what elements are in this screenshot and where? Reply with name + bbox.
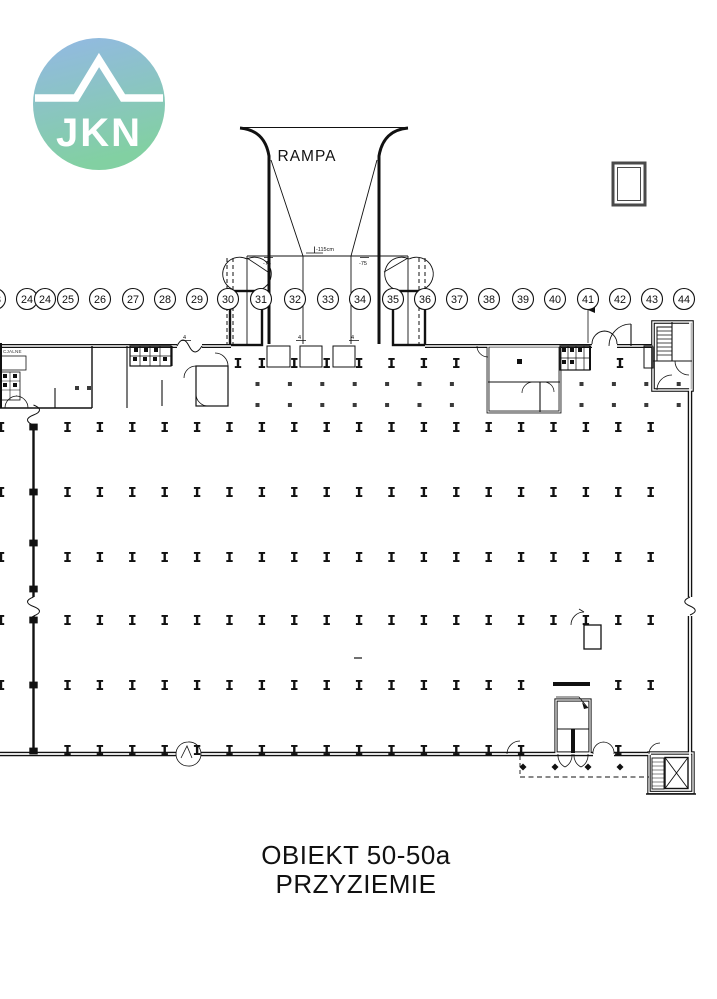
- column-marker: [388, 487, 394, 497]
- column-dot: [87, 386, 91, 390]
- column-marker: [226, 745, 232, 755]
- column-marker: [324, 615, 330, 625]
- column-marker: [226, 615, 232, 625]
- column-marker: [129, 680, 135, 690]
- column-marker: [64, 552, 70, 562]
- column-marker: [64, 487, 70, 497]
- grid-bubble-label: 42: [614, 294, 626, 306]
- top-band-rooms: [1, 306, 692, 412]
- column-marker: [129, 745, 135, 755]
- column-dot: [644, 403, 648, 407]
- wall-column: [29, 424, 37, 431]
- diamond-marker: [617, 764, 624, 771]
- column-marker: [97, 745, 103, 755]
- column-marker: [356, 487, 362, 497]
- column-marker: [388, 680, 394, 690]
- column-dot: [677, 403, 681, 407]
- column-marker: [518, 615, 524, 625]
- column-marker: [617, 358, 623, 368]
- column-marker: [453, 615, 459, 625]
- column-marker: [194, 487, 200, 497]
- grid-bubble: 36: [415, 289, 436, 310]
- column-marker: [583, 615, 589, 625]
- dock-door-right: [385, 257, 434, 289]
- column-marker: [162, 552, 168, 562]
- grid-bubble-label: 43: [646, 294, 658, 306]
- grid-bubble-label: 28: [159, 294, 171, 306]
- grid-bubble: 38: [479, 289, 500, 310]
- title-line2: PRZYZIEMIE: [275, 869, 436, 899]
- left-room-box: [1, 356, 26, 370]
- title-line1: OBIEKT 50-50a: [261, 840, 451, 870]
- grid-bubble-label: 24: [39, 294, 51, 306]
- grid-bubble: 29: [187, 289, 208, 310]
- column-dot: [418, 403, 422, 407]
- column-marker: [97, 615, 103, 625]
- column-marker: [259, 358, 265, 368]
- column-marker: [550, 422, 556, 432]
- column-dot: [385, 403, 389, 407]
- dock-pad: [300, 346, 322, 367]
- column-marker: [0, 552, 4, 562]
- wall-breaks: [177, 340, 695, 616]
- column-marker: [453, 680, 459, 690]
- column-marker: [583, 422, 589, 432]
- column-marker: [259, 745, 265, 755]
- grid-bubble-label: 39: [517, 294, 529, 306]
- column-marker: [226, 680, 232, 690]
- grid-bubble-label: 25: [62, 294, 74, 306]
- column-marker: [324, 552, 330, 562]
- column-marker: [324, 422, 330, 432]
- column-marker: [194, 745, 200, 755]
- column-marker: [324, 745, 330, 755]
- hall-closet: [584, 625, 601, 649]
- column-dot: [612, 382, 616, 386]
- column-marker: [421, 680, 427, 690]
- column-marker: [0, 422, 4, 432]
- logo-text: JKN: [56, 111, 142, 155]
- drawing-sheet: JKN RAMPA -115cm -75 -75 4 4 4: [0, 0, 717, 999]
- column-marker: [259, 615, 265, 625]
- ramp-depth-annotation: -115cm: [316, 247, 334, 253]
- column-dot: [320, 403, 324, 407]
- column-marker: [64, 680, 70, 690]
- column-marker: [486, 487, 492, 497]
- ramp-slope-right: -75: [359, 261, 367, 267]
- column-marker: [356, 422, 362, 432]
- column-marker: [194, 680, 200, 690]
- grid-bubble-label: 37: [451, 294, 463, 306]
- column-marker: [453, 358, 459, 368]
- column-marker: [486, 680, 492, 690]
- left-wall: [0, 343, 92, 754]
- column-marker: [291, 422, 297, 432]
- column-marker: [648, 680, 654, 690]
- column-marker: [291, 358, 297, 368]
- column-dot: [677, 382, 681, 386]
- grid-bubble-label: 44: [678, 294, 690, 306]
- column-marker: [194, 552, 200, 562]
- column-marker: [421, 487, 427, 497]
- grid-bubble-label: 23: [0, 294, 1, 306]
- title-block: OBIEKT 50-50a PRZYZIEMIE: [261, 840, 451, 899]
- grid-bubble: 41: [578, 289, 599, 310]
- grid-bubble: 27: [123, 289, 144, 310]
- column-dot: [385, 382, 389, 386]
- column-marker: [162, 422, 168, 432]
- walls: [0, 322, 693, 793]
- grid-bubble: 42: [610, 289, 631, 310]
- column-marker: [388, 745, 394, 755]
- grid-bubble: 23: [0, 289, 6, 310]
- grid-axis-bubbles: 2324242526272829303132333435363738394041…: [0, 289, 695, 310]
- door-arc: [609, 324, 631, 346]
- column-marker: [550, 615, 556, 625]
- column-marker: [453, 745, 459, 755]
- wall-column: [29, 489, 37, 496]
- door-arc: [593, 742, 614, 754]
- ramp-label: RAMPA: [278, 148, 337, 165]
- column-marker: [583, 487, 589, 497]
- grid-bubble-label: 32: [289, 294, 301, 306]
- column-marker: [324, 680, 330, 690]
- grid-bubble-label: 30: [222, 294, 234, 306]
- column-marker: [64, 422, 70, 432]
- column-marker: [259, 680, 265, 690]
- column-marker: [421, 615, 427, 625]
- left-room-label: CJALNE: [3, 349, 22, 354]
- column-marker: [194, 615, 200, 625]
- column-marker: [356, 615, 362, 625]
- column-marker: [615, 680, 621, 690]
- column-marker: [291, 552, 297, 562]
- grid-bubble: 31: [251, 289, 272, 310]
- column-dot: [418, 382, 422, 386]
- column-marker: [583, 552, 589, 562]
- column-marker: [97, 680, 103, 690]
- floor-plan: JKN RAMPA -115cm -75 -75 4 4 4: [0, 0, 717, 999]
- column-marker: [388, 615, 394, 625]
- wall-column: [29, 617, 37, 624]
- diamond-marker: [585, 764, 592, 771]
- column-dot: [612, 403, 616, 407]
- grid-bubble-label: 41: [582, 294, 594, 306]
- grid-bubble-label: 36: [419, 294, 431, 306]
- column-marker: [648, 487, 654, 497]
- grid-bubble: 32: [285, 289, 306, 310]
- grid-bubble: 25: [58, 289, 79, 310]
- column-marker: [129, 487, 135, 497]
- column-dot: [353, 403, 357, 407]
- column-marker: [550, 487, 556, 497]
- column-marker: [615, 745, 621, 755]
- column-dot: [353, 382, 357, 386]
- column-marker: [64, 745, 70, 755]
- column-marker: [324, 487, 330, 497]
- grid-bubble-label: 38: [483, 294, 495, 306]
- grid-bubble-label: 29: [191, 294, 203, 306]
- column-marker: [518, 552, 524, 562]
- column-marker: [129, 552, 135, 562]
- column-marker: [129, 422, 135, 432]
- roof-shaft: [613, 163, 645, 205]
- column-marker: [550, 552, 556, 562]
- column-marker: [518, 422, 524, 432]
- column-marker: [162, 680, 168, 690]
- dock-pad: [333, 346, 355, 367]
- grid-bubble-label: 34: [354, 294, 366, 306]
- column-marker: [518, 680, 524, 690]
- column-marker: [97, 552, 103, 562]
- dock-pad: [267, 346, 290, 367]
- column-marker: [259, 552, 265, 562]
- column-marker: [388, 552, 394, 562]
- column-dot: [288, 403, 292, 407]
- grid-bubble: 30: [218, 289, 239, 310]
- column-marker: [0, 680, 4, 690]
- column-marker: [291, 615, 297, 625]
- wall-column: [29, 586, 37, 593]
- column-marker: [518, 487, 524, 497]
- column-marker: [162, 615, 168, 625]
- wall-column: [29, 748, 37, 755]
- grid-bubble-label: 24: [21, 294, 33, 306]
- column-marker: [259, 487, 265, 497]
- column-marker: [421, 358, 427, 368]
- grid-bubble: 44: [674, 289, 695, 310]
- column-marker: [421, 422, 427, 432]
- grid-bubble-label: 31: [255, 294, 267, 306]
- column-marker: [421, 745, 427, 755]
- column-marker: [64, 615, 70, 625]
- column-marker: [356, 745, 362, 755]
- column-marker: [453, 422, 459, 432]
- column-marker: [356, 358, 362, 368]
- grade-mark: 4: [298, 335, 301, 341]
- column-marker: [486, 615, 492, 625]
- column-marker: [421, 552, 427, 562]
- column-dot: [580, 382, 584, 386]
- grid-bubble: 34: [350, 289, 371, 310]
- diamond-marker: [552, 764, 559, 771]
- door-arc: [571, 612, 584, 625]
- grid-bubble: 28: [155, 289, 176, 310]
- column-marker: [518, 745, 524, 755]
- column-dot: [256, 382, 260, 386]
- column-marker: [388, 358, 394, 368]
- column-marker: [356, 552, 362, 562]
- column-dot: [320, 382, 324, 386]
- ramp-wall-left: [240, 128, 269, 344]
- column-marker: [291, 745, 297, 755]
- column-marker: [259, 422, 265, 432]
- column-marker: [486, 422, 492, 432]
- grid-bubble: 26: [90, 289, 111, 310]
- column-dot: [450, 382, 454, 386]
- column-marker: [615, 422, 621, 432]
- column-marker: [291, 487, 297, 497]
- column-marker: [453, 487, 459, 497]
- grid-bubble-label: 40: [549, 294, 561, 306]
- column-marker: [194, 422, 200, 432]
- door-arc: [5, 396, 28, 408]
- grade-mark: 4: [351, 335, 354, 341]
- grid-bubble: 39: [513, 289, 534, 310]
- column-marker: [0, 615, 4, 625]
- wall-column: [29, 540, 37, 547]
- column-dot: [644, 382, 648, 386]
- column-dot: [450, 403, 454, 407]
- column-marker: [97, 422, 103, 432]
- column-marker: [162, 487, 168, 497]
- grid-bubble: 43: [642, 289, 663, 310]
- grid-bubble: 37: [447, 289, 468, 310]
- column-dot: [288, 382, 292, 386]
- column-dot: [75, 386, 79, 390]
- column-marker: [615, 487, 621, 497]
- diamond-marker: [520, 764, 527, 771]
- grid-bubble: 33: [318, 289, 339, 310]
- column-dot: [580, 403, 584, 407]
- column-marker: [486, 745, 492, 755]
- column-marker: [235, 358, 241, 368]
- grid-bubble-label: 33: [322, 294, 334, 306]
- grid-bubble-label: 26: [94, 294, 106, 306]
- column-marker: [226, 552, 232, 562]
- grid-bubble-label: 27: [127, 294, 139, 306]
- column-marker: [648, 615, 654, 625]
- jkn-logo: JKN: [33, 38, 165, 170]
- column-marker: [0, 487, 4, 497]
- grid-bubble: 40: [545, 289, 566, 310]
- wall-column: [29, 682, 37, 689]
- column-marker: [356, 680, 362, 690]
- column-marker: [226, 487, 232, 497]
- column-marker: [615, 615, 621, 625]
- grid-bubble: 35: [383, 289, 404, 310]
- column-marker: [486, 552, 492, 562]
- column-marker: [291, 680, 297, 690]
- column-marker: [226, 422, 232, 432]
- door-arc: [184, 353, 228, 406]
- ramp-slope-left: -75: [263, 261, 271, 267]
- grid-bubble-label: 35: [387, 294, 399, 306]
- column-marker: [97, 487, 103, 497]
- grid-bubble: 24: [35, 289, 56, 310]
- small-room: [196, 366, 228, 406]
- column-marker: [648, 422, 654, 432]
- column-marker: [648, 552, 654, 562]
- column-marker: [162, 745, 168, 755]
- column-marker: [615, 552, 621, 562]
- column-marker: [453, 552, 459, 562]
- column-dot: [256, 403, 260, 407]
- column-marker: [324, 358, 330, 368]
- column-marker: [129, 615, 135, 625]
- column-marker: [388, 422, 394, 432]
